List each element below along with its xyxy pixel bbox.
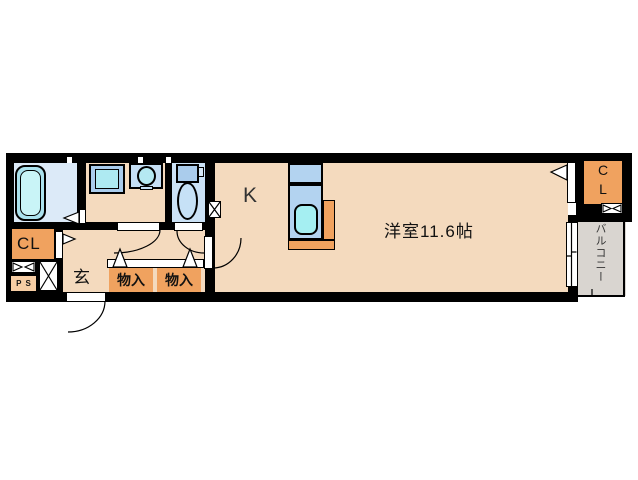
- toilet-door-leaf: [174, 222, 203, 231]
- wall-under-vent-window: [601, 213, 623, 222]
- wall-vent-notch: [166, 157, 171, 163]
- kitchen-label: K: [243, 184, 257, 208]
- shutter-vent-right: [601, 203, 623, 214]
- wall-top: [6, 153, 632, 163]
- kitchen-counter-edge-right: [323, 200, 335, 240]
- washing-machine-inner: [95, 169, 119, 189]
- shaft-box: [208, 201, 221, 218]
- main-room-label: 洋室11.6帖: [384, 217, 514, 242]
- toilet-tank: [176, 164, 199, 183]
- kitchen-fridge-space: [288, 163, 323, 184]
- bathtub-inner: [20, 170, 41, 216]
- balcony-edge-bottom: [578, 295, 625, 297]
- floorplan-canvas: K 洋室11.6帖 CL C L 玄 物入 物入 PS バルコニー: [0, 0, 638, 480]
- kitchen-door-leaf: [204, 236, 213, 269]
- meter-box: [39, 261, 58, 291]
- entrance-door-leaf: [66, 292, 106, 302]
- kitchen-counter-edge-bottom: [288, 240, 335, 250]
- storage-2-label: 物入: [157, 268, 201, 292]
- wall-vent-notch: [67, 157, 72, 163]
- storage-door-track: [107, 259, 204, 268]
- pipe-space-label: PS: [11, 276, 36, 291]
- balcony-edge-right: [623, 222, 625, 297]
- wall-washroom-toilet: [165, 163, 172, 222]
- shutter-vent-left: [11, 261, 36, 273]
- closet-right-door-leaf: [567, 162, 576, 203]
- entrance-door-arc: [68, 301, 105, 332]
- balcony-sliding-window: [566, 222, 578, 287]
- wall-right-upper: [622, 153, 632, 222]
- closet-right-label-l: L: [584, 180, 622, 199]
- closet-right-label-c: C: [584, 161, 622, 180]
- closet-left-label: CL: [17, 234, 41, 254]
- washbasin-base: [140, 186, 153, 190]
- washroom-door-leaf: [117, 222, 160, 231]
- bath-door-leaf: [79, 209, 86, 224]
- washbasin-bowl: [137, 166, 156, 186]
- wall-closet-right-lower: [577, 202, 601, 222]
- toilet-handle: [198, 167, 204, 177]
- entrance-label: 玄: [73, 263, 90, 288]
- balcony-label: バルコニー: [592, 223, 608, 295]
- storage-1-label: 物入: [109, 268, 153, 292]
- closet-left-door-leaf: [55, 231, 63, 259]
- kitchen-sink: [294, 204, 318, 235]
- toilet-bowl: [177, 182, 198, 220]
